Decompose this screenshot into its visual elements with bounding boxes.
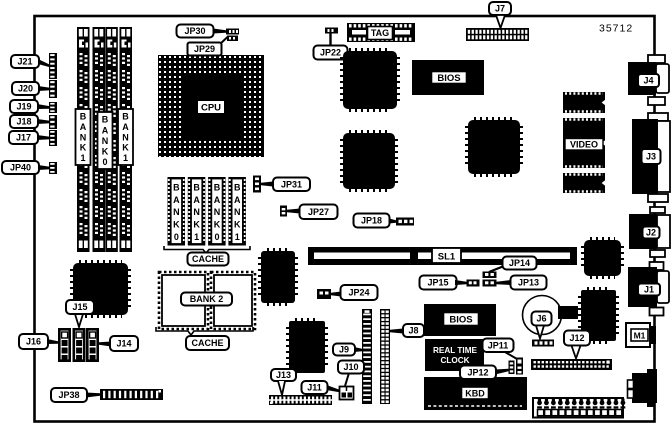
svg-text:VIDEO: VIDEO bbox=[570, 140, 598, 150]
svg-text:J15: J15 bbox=[72, 302, 87, 312]
svg-text:JP31: JP31 bbox=[281, 179, 302, 189]
svg-text:JP11: JP11 bbox=[488, 340, 509, 350]
svg-text:35712: 35712 bbox=[599, 23, 633, 35]
svg-text:JP38: JP38 bbox=[58, 390, 79, 400]
svg-text:J18: J18 bbox=[16, 117, 31, 127]
svg-text:JP24: JP24 bbox=[348, 288, 369, 298]
svg-text:J17: J17 bbox=[16, 133, 31, 143]
svg-text:CLOCK: CLOCK bbox=[440, 356, 469, 365]
svg-text:JP30: JP30 bbox=[184, 26, 205, 36]
svg-text:J13: J13 bbox=[276, 370, 291, 380]
svg-text:JP14: JP14 bbox=[509, 258, 530, 268]
svg-text:J14: J14 bbox=[116, 339, 131, 349]
svg-text:J1: J1 bbox=[644, 285, 654, 295]
svg-text:J6: J6 bbox=[536, 314, 546, 324]
svg-text:JP13: JP13 bbox=[518, 278, 539, 288]
svg-text:J3: J3 bbox=[646, 152, 656, 162]
svg-text:KBD: KBD bbox=[465, 389, 485, 399]
svg-text:TAG: TAG bbox=[371, 28, 389, 38]
svg-text:CACHE: CACHE bbox=[192, 254, 224, 264]
svg-text:JP15: JP15 bbox=[427, 278, 448, 288]
svg-text:J4: J4 bbox=[643, 76, 653, 86]
svg-text:BIOS: BIOS bbox=[437, 73, 460, 84]
svg-text:J19: J19 bbox=[16, 102, 31, 112]
svg-text:J10: J10 bbox=[343, 362, 358, 372]
svg-text:JP12: JP12 bbox=[467, 367, 488, 377]
svg-text:BIOS: BIOS bbox=[449, 315, 472, 326]
svg-text:JP22: JP22 bbox=[320, 48, 341, 58]
svg-text:CACHE: CACHE bbox=[191, 338, 223, 348]
svg-text:J11: J11 bbox=[307, 383, 322, 393]
svg-text:J7: J7 bbox=[495, 4, 505, 14]
svg-text:REAL TIME: REAL TIME bbox=[433, 346, 478, 355]
svg-text:J2: J2 bbox=[646, 228, 656, 238]
svg-text:M1: M1 bbox=[634, 331, 646, 341]
svg-text:JP40: JP40 bbox=[10, 163, 31, 173]
svg-text:JP29: JP29 bbox=[194, 44, 215, 54]
svg-text:J21: J21 bbox=[17, 57, 32, 67]
svg-text:SL1: SL1 bbox=[438, 252, 456, 263]
svg-text:J9: J9 bbox=[339, 345, 349, 355]
svg-text:J12: J12 bbox=[569, 333, 584, 343]
svg-text:CPU: CPU bbox=[201, 103, 221, 114]
svg-text:J20: J20 bbox=[18, 84, 33, 94]
svg-text:BANK 2: BANK 2 bbox=[190, 294, 224, 304]
svg-text:JP18: JP18 bbox=[361, 216, 382, 226]
svg-text:J16: J16 bbox=[26, 337, 41, 347]
svg-text:J8: J8 bbox=[408, 326, 418, 336]
svg-text:JP27: JP27 bbox=[308, 207, 329, 217]
